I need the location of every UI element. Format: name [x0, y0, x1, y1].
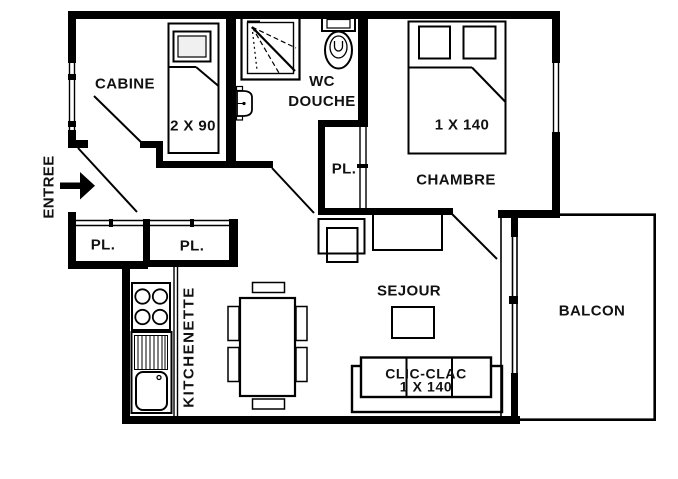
chambre-bed-icon: [409, 22, 506, 154]
toilet-icon: [322, 17, 355, 69]
dining-table-icon: [228, 283, 307, 410]
bed-size-label-cabine: 2 X 90: [170, 119, 216, 134]
sofa-label-line2: 1 X 140: [385, 380, 467, 393]
room-label-wc-douche: WC DOUCHE: [288, 72, 355, 112]
room-label-chambre: CHAMBRE: [416, 173, 495, 188]
room-label-entree: ENTREE: [42, 155, 57, 218]
coffee-table-icon: [392, 307, 434, 338]
shower-icon: [242, 17, 300, 80]
wc-label-line1: WC: [288, 72, 355, 92]
sink-icon: [237, 87, 253, 121]
room-label-cabine: CABINE: [95, 77, 155, 92]
sideboard-icon: [373, 214, 442, 250]
armchair-icon: [319, 219, 365, 262]
chambre-door-swing: [452, 214, 497, 259]
room-label-kitchenette: KITCHENETTE: [182, 286, 197, 408]
bed-size-label-chambre: 1 X 140: [435, 118, 490, 133]
wc-door-swing: [272, 168, 314, 213]
closet-label-entry-right: PL.: [180, 239, 205, 254]
closet-label-hall: PL.: [332, 162, 357, 177]
cabine-door-swing: [94, 96, 143, 144]
kitchen-sink-icon: [132, 332, 172, 413]
wc-label-line2: DOUCHE: [288, 92, 355, 112]
sofa-bed-label: CLIC-CLAC 1 X 140: [385, 368, 467, 393]
room-label-sejour: SEJOUR: [377, 284, 441, 299]
closet-label-entry-left: PL.: [91, 238, 116, 253]
floor-plan: CABINE 2 X 90 WC DOUCHE 1 X 140 CHAMBRE …: [0, 0, 678, 479]
entry-arrow-icon: [60, 172, 95, 200]
room-label-balcon: BALCON: [559, 304, 626, 319]
stove-icon: [132, 283, 170, 330]
